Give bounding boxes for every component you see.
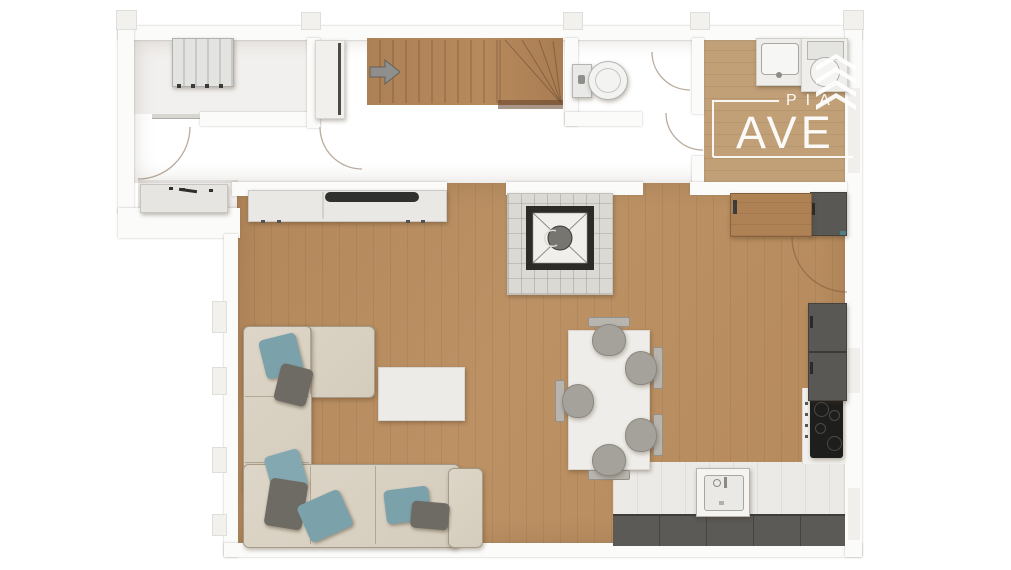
overlay-graphics [0,0,1011,570]
floorplan-canvas: PIA AVE [0,0,1011,570]
stair-direction-arrow-icon [370,60,400,84]
watermark-frame [712,100,853,157]
door-swing-arcs [138,52,847,292]
stacked-chevrons-logo-icon [816,54,856,110]
fireplace-detail [533,213,587,263]
stair-winders [505,40,561,103]
